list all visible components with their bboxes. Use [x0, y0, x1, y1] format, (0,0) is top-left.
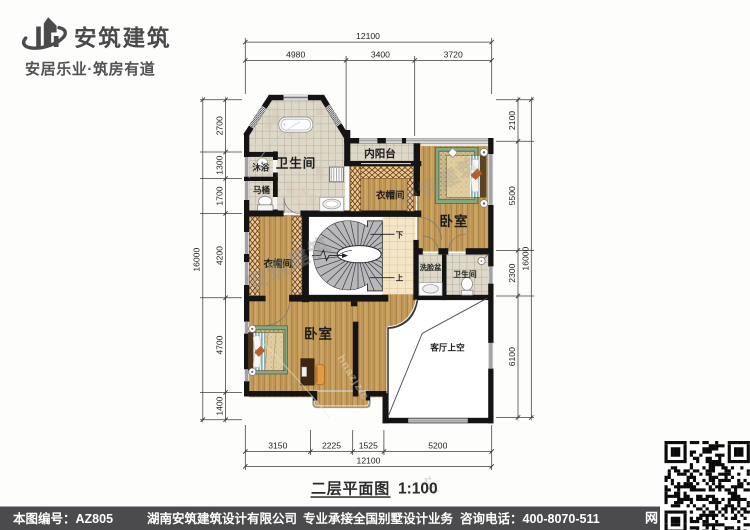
svg-text:16000: 16000 [520, 246, 530, 270]
svg-text:网: 网 [645, 511, 658, 526]
svg-text:2300: 2300 [507, 263, 517, 282]
svg-text:1:100: 1:100 [398, 481, 438, 498]
svg-text:4700: 4700 [214, 335, 224, 354]
svg-text:二层平面图: 二层平面图 [311, 481, 390, 498]
svg-text:16000: 16000 [192, 248, 202, 272]
svg-text:12100: 12100 [356, 31, 380, 41]
svg-text:4200: 4200 [214, 246, 224, 265]
svg-text:1300: 1300 [214, 155, 224, 174]
svg-text:12100: 12100 [357, 455, 381, 465]
svg-text:1525: 1525 [359, 441, 378, 451]
svg-text:1700: 1700 [214, 186, 224, 205]
svg-text:客厅上空: 客厅上空 [429, 341, 465, 352]
svg-text:5200: 5200 [428, 441, 447, 451]
svg-text:下: 下 [396, 230, 404, 239]
svg-text:专业承接全国别墅设计业务: 专业承接全国别墅设计业务 [303, 511, 454, 526]
svg-text:6100: 6100 [507, 347, 517, 366]
svg-text:卧室: 卧室 [304, 325, 333, 341]
svg-text:卧室: 卧室 [440, 213, 469, 229]
svg-text:安居乐业·筑房有道: 安居乐业·筑房有道 [25, 60, 155, 78]
svg-text:2700: 2700 [214, 116, 224, 135]
svg-text:2225: 2225 [322, 441, 341, 451]
svg-text:卫生间: 卫生间 [453, 269, 477, 279]
svg-text:湖南安筑建筑设计有限公司: 湖南安筑建筑设计有限公司 [147, 511, 297, 526]
svg-text:4980: 4980 [286, 49, 305, 59]
svg-text:咨询电话：400-8070-511: 咨询电话：400-8070-511 [460, 511, 600, 526]
svg-text:上: 上 [396, 274, 404, 283]
svg-text:3720: 3720 [444, 49, 463, 59]
svg-text:2100: 2100 [507, 111, 517, 130]
svg-text:3400: 3400 [371, 49, 390, 59]
svg-text:洗脸盆: 洗脸盆 [420, 263, 442, 272]
svg-text:马桶: 马桶 [253, 185, 270, 195]
svg-text:3150: 3150 [268, 441, 287, 451]
svg-text:本图编号：AZ805: 本图编号：AZ805 [13, 511, 113, 526]
svg-text:安筑建筑: 安筑建筑 [74, 25, 171, 51]
svg-text:5500: 5500 [507, 186, 517, 205]
svg-text:内阳台: 内阳台 [364, 147, 396, 160]
svg-text:卫生间: 卫生间 [276, 156, 317, 171]
svg-text:1400: 1400 [214, 396, 224, 415]
